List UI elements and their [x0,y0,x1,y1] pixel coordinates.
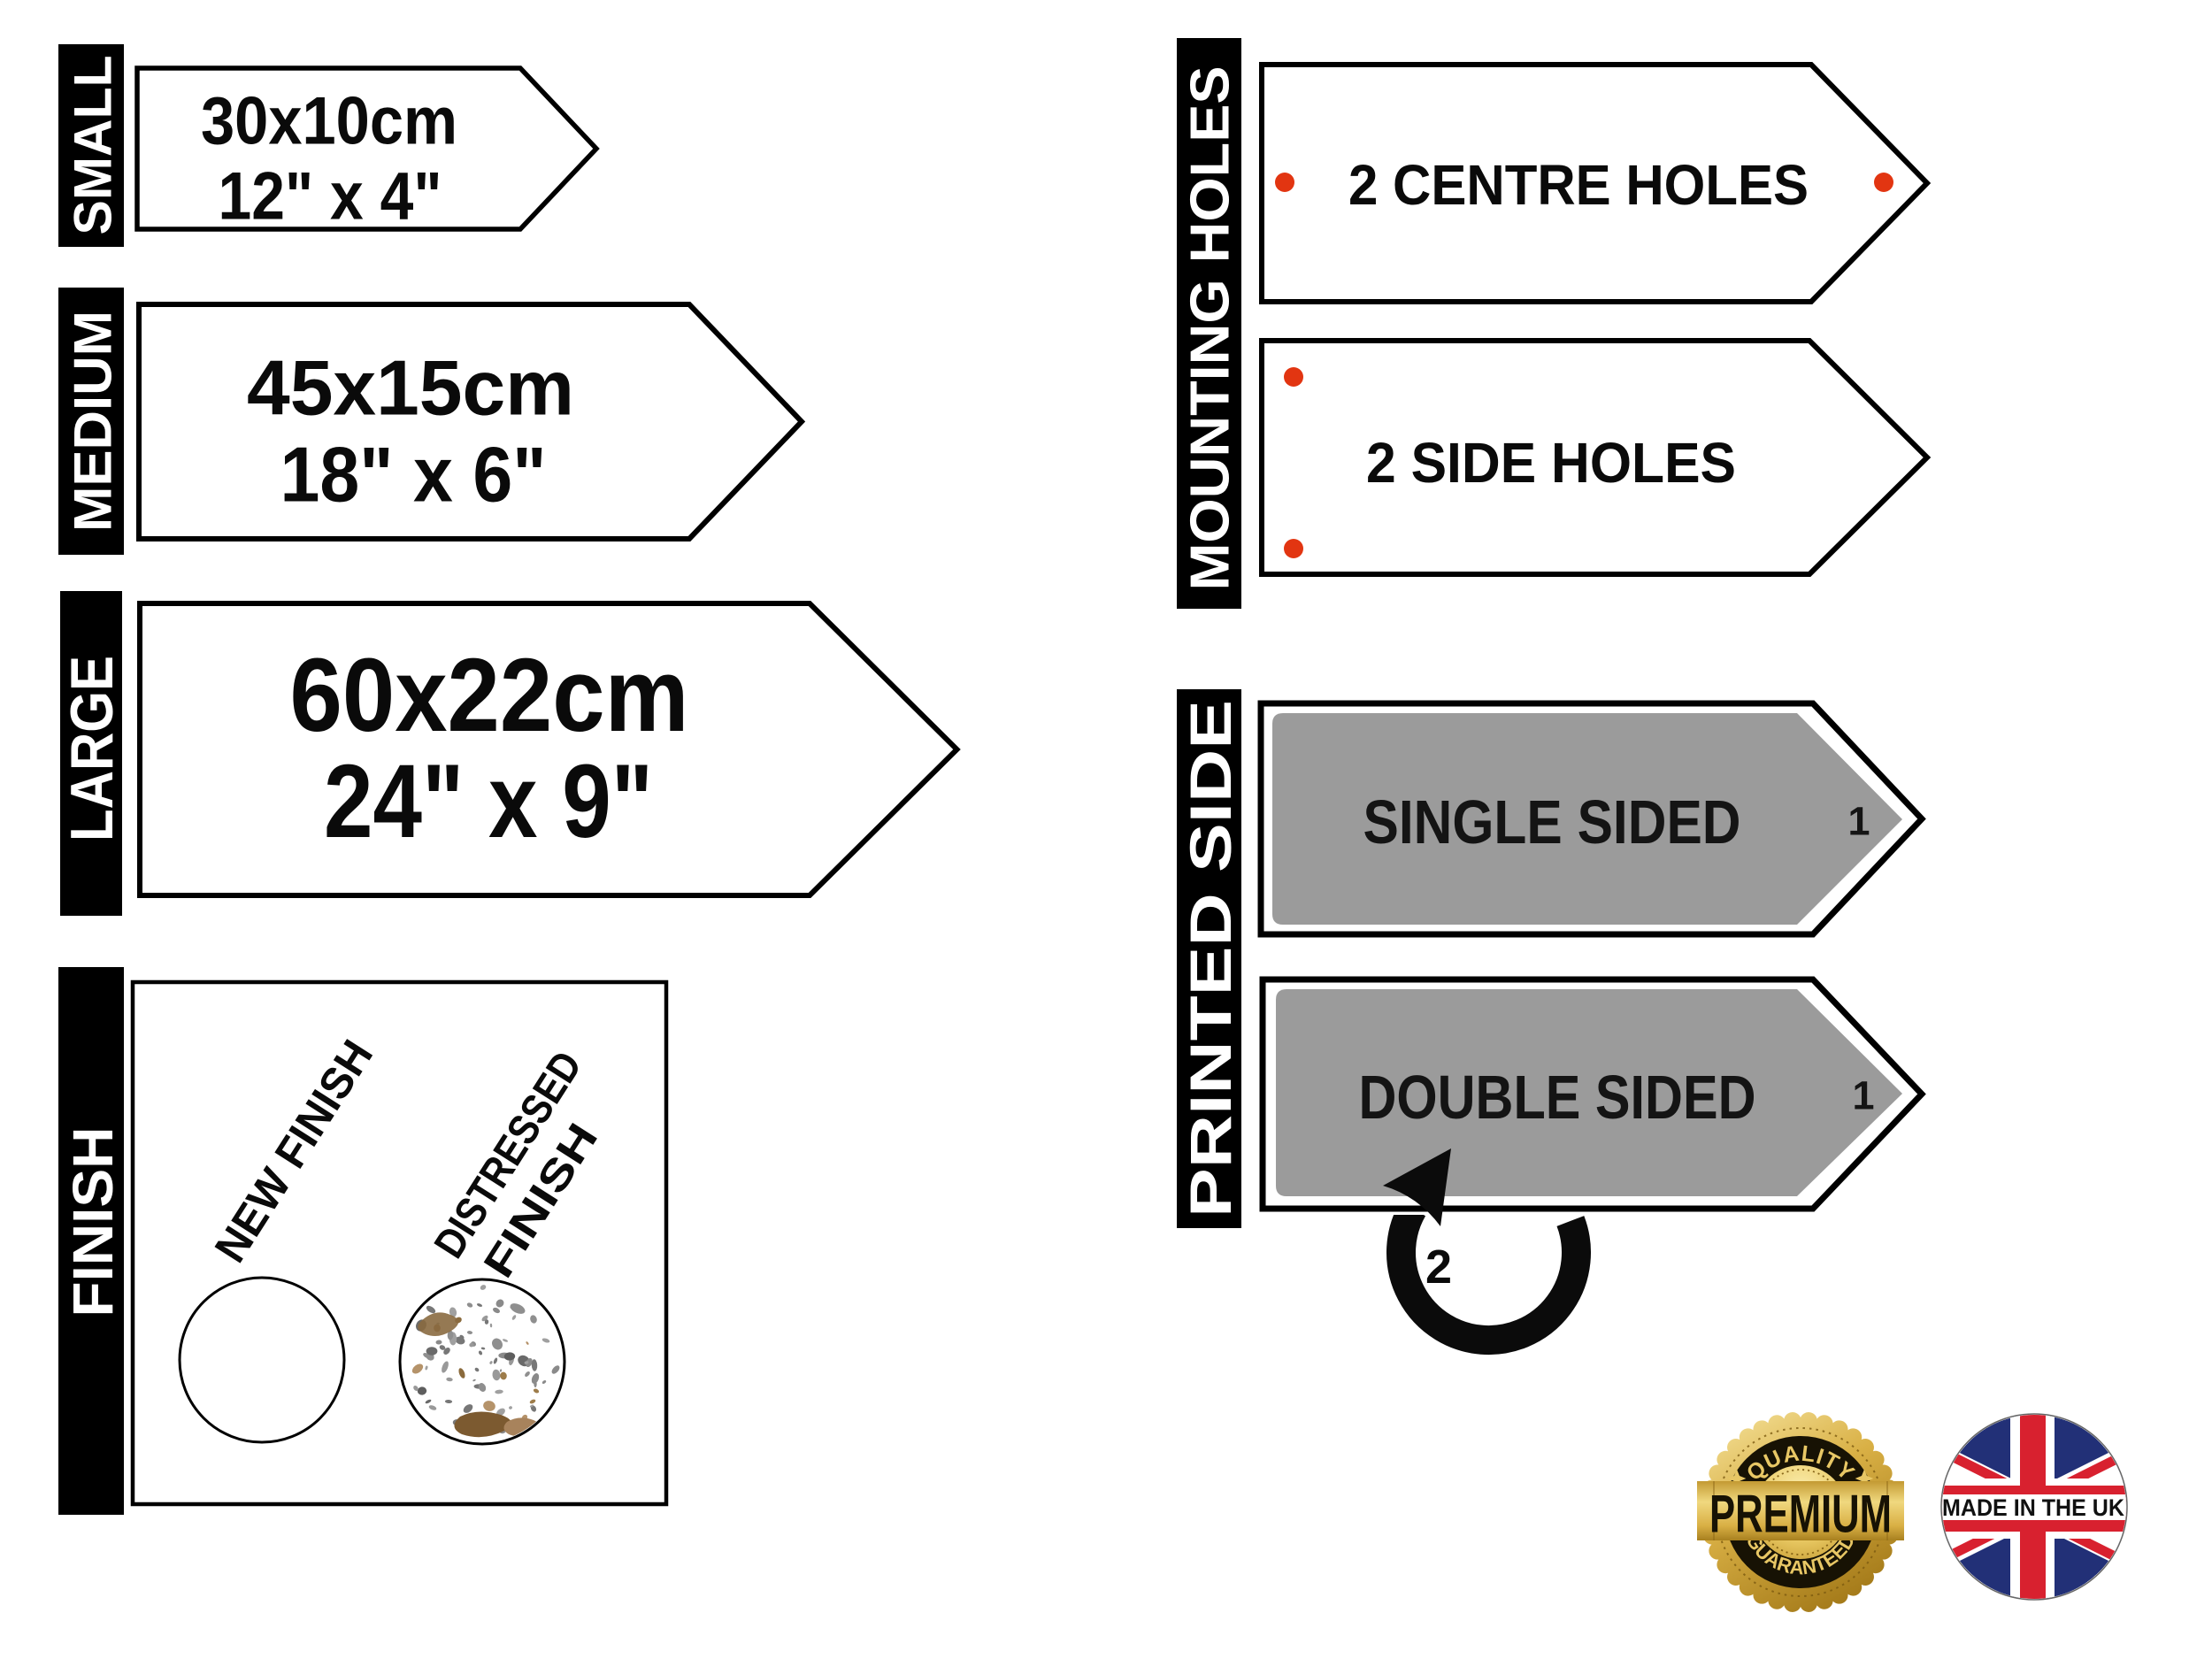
svg-text:24" x 9": 24" x 9" [324,743,653,860]
svg-text:PREMIUM: PREMIUM [1709,1485,1892,1544]
svg-text:SMALL: SMALL [64,56,123,235]
svg-text:2 SIDE HOLES: 2 SIDE HOLES [1366,431,1736,495]
svg-text:SINGLE SIDED: SINGLE SIDED [1363,787,1741,856]
svg-text:12" x 4": 12" x 4" [219,159,442,234]
svg-text:LARGE: LARGE [58,656,126,841]
svg-text:MOUNTING HOLES: MOUNTING HOLES [1180,66,1241,591]
svg-text:1: 1 [1847,799,1870,844]
svg-text:FINISH: FINISH [61,1127,125,1317]
svg-text:PRINTED SIDE: PRINTED SIDE [1178,700,1243,1217]
svg-text:30x10cm: 30x10cm [201,84,457,159]
svg-text:DOUBLE SIDED: DOUBLE SIDED [1359,1063,1756,1132]
svg-text:MEDIUM: MEDIUM [64,311,123,532]
svg-text:18" x 6": 18" x 6" [280,431,547,518]
svg-text:1: 1 [1852,1073,1874,1118]
svg-text:60x22cm: 60x22cm [290,637,689,754]
svg-text:2: 2 [1425,1240,1452,1294]
svg-text:2 CENTRE HOLES: 2 CENTRE HOLES [1348,153,1809,217]
svg-text:45x15cm: 45x15cm [247,344,574,432]
svg-text:MADE IN THE UK: MADE IN THE UK [1942,1494,2124,1521]
